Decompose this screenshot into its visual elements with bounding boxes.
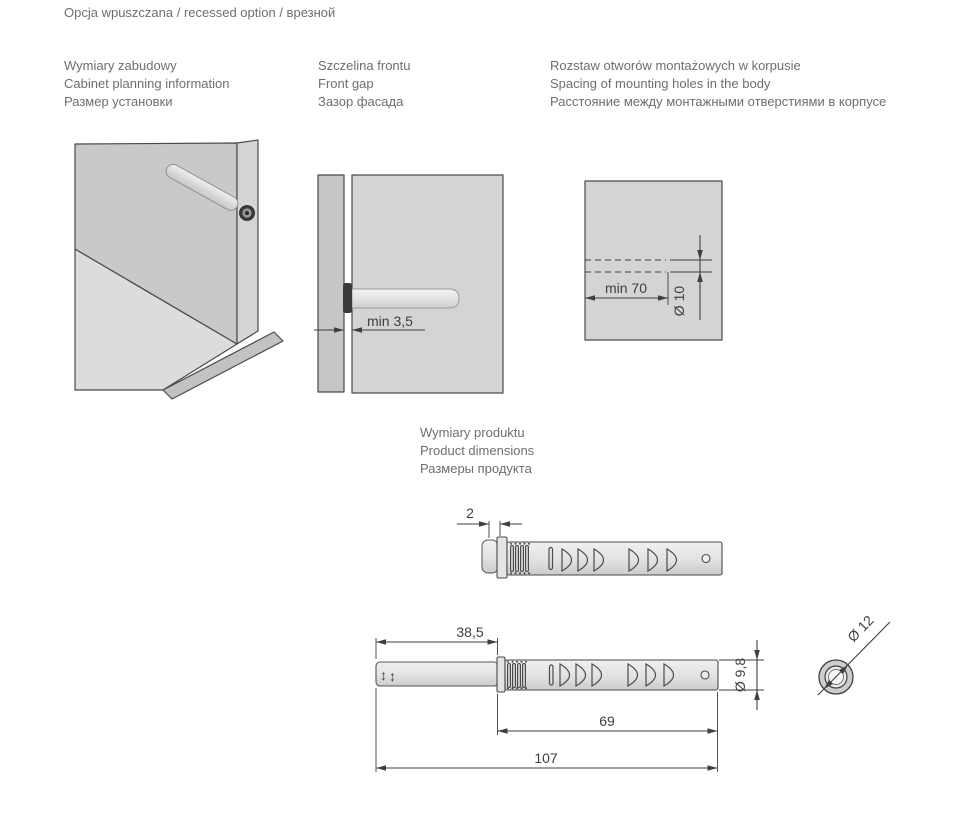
label-line-ru: Расстояние между монтажными отверстиями … bbox=[550, 93, 886, 111]
label-line-ru: Размер установки bbox=[64, 93, 230, 111]
dim-flange-thickness: 2 bbox=[466, 505, 474, 521]
pin-extension-dimension: 38,5 bbox=[376, 624, 498, 659]
label-line-pl: Wymiary produktu bbox=[420, 424, 534, 442]
flange-thickness-dimension: 2 bbox=[457, 505, 522, 538]
adjust-screw-icon: ↕ bbox=[389, 668, 396, 684]
body-panel-section bbox=[352, 175, 503, 393]
cabinet-side-panel-edge bbox=[237, 140, 258, 344]
cabinet-3d-drawing bbox=[60, 135, 280, 400]
rib-section bbox=[507, 661, 527, 689]
pin-tip-bumper bbox=[343, 283, 352, 313]
section-label-front-gap: Szczelina frontu Front gap Зазор фасада bbox=[318, 57, 411, 111]
pin-cap-retracted bbox=[482, 540, 498, 573]
front-panel-section bbox=[318, 175, 344, 392]
section-label-cabinet: Wymiary zabudowy Cabinet planning inform… bbox=[64, 57, 230, 111]
end-view-drawing: Ø 12 bbox=[800, 600, 920, 720]
label-line-ru: Размеры продукта bbox=[420, 460, 534, 478]
dim-total-length: 107 bbox=[534, 750, 558, 766]
label-line-pl: Szczelina frontu bbox=[318, 57, 411, 75]
label-line-en: Cabinet planning information bbox=[64, 75, 230, 93]
dim-pin-extension: 38,5 bbox=[456, 624, 483, 640]
body-hole bbox=[702, 555, 710, 563]
head-diameter-dimension: Ø 12 bbox=[818, 612, 890, 695]
dim-front-gap-min: min 3,5 bbox=[367, 313, 413, 329]
body-diameter-dimension: Ø 9,8 bbox=[719, 640, 764, 710]
label-line-en: Product dimensions bbox=[420, 442, 534, 460]
product-top-drawing: 2 bbox=[440, 495, 740, 600]
label-line-en: Spacing of mounting holes in the body bbox=[550, 75, 886, 93]
section-label-product-dimensions: Wymiary produktu Product dimensions Разм… bbox=[420, 424, 534, 478]
damper-body bbox=[505, 660, 718, 690]
dim-hole-diameter: Ø 10 bbox=[671, 286, 687, 317]
grommet-icon bbox=[240, 206, 255, 221]
rib-section bbox=[510, 543, 530, 575]
flange bbox=[497, 537, 507, 578]
label-line-ru: Зазор фасада bbox=[318, 93, 411, 111]
damper-pin-side bbox=[352, 289, 459, 308]
label-line-pl: Rozstaw otworów montażowych w korpusie bbox=[550, 57, 886, 75]
dim-body-diameter: Ø 9,8 bbox=[732, 658, 748, 692]
label-line-pl: Wymiary zabudowy bbox=[64, 57, 230, 75]
dim-hole-depth-min: min 70 bbox=[605, 280, 647, 296]
damper-body bbox=[507, 542, 722, 575]
dim-body-length: 69 bbox=[599, 713, 615, 729]
flange bbox=[497, 657, 505, 692]
body-length-dimension: 69 bbox=[498, 692, 718, 772]
mounting-hole-drawing: min 70 Ø 10 bbox=[578, 175, 730, 350]
label-line-en: Front gap bbox=[318, 75, 411, 93]
body-hole bbox=[701, 671, 709, 679]
catalog-diagram-page: Opcja wpuszczana / recessed option / вре… bbox=[0, 0, 964, 839]
total-length-dimension: 107 bbox=[376, 688, 718, 772]
front-gap-drawing: min 3,5 bbox=[310, 165, 515, 400]
section-label-mounting-holes: Rozstaw otworów montażowych w korpusie S… bbox=[550, 57, 886, 111]
adjust-arrow-icon: ↕ bbox=[380, 667, 387, 683]
product-side-drawing: ↕ ↕ 38, bbox=[360, 615, 780, 790]
page-title: Opcja wpuszczana / recessed option / вре… bbox=[64, 4, 335, 22]
